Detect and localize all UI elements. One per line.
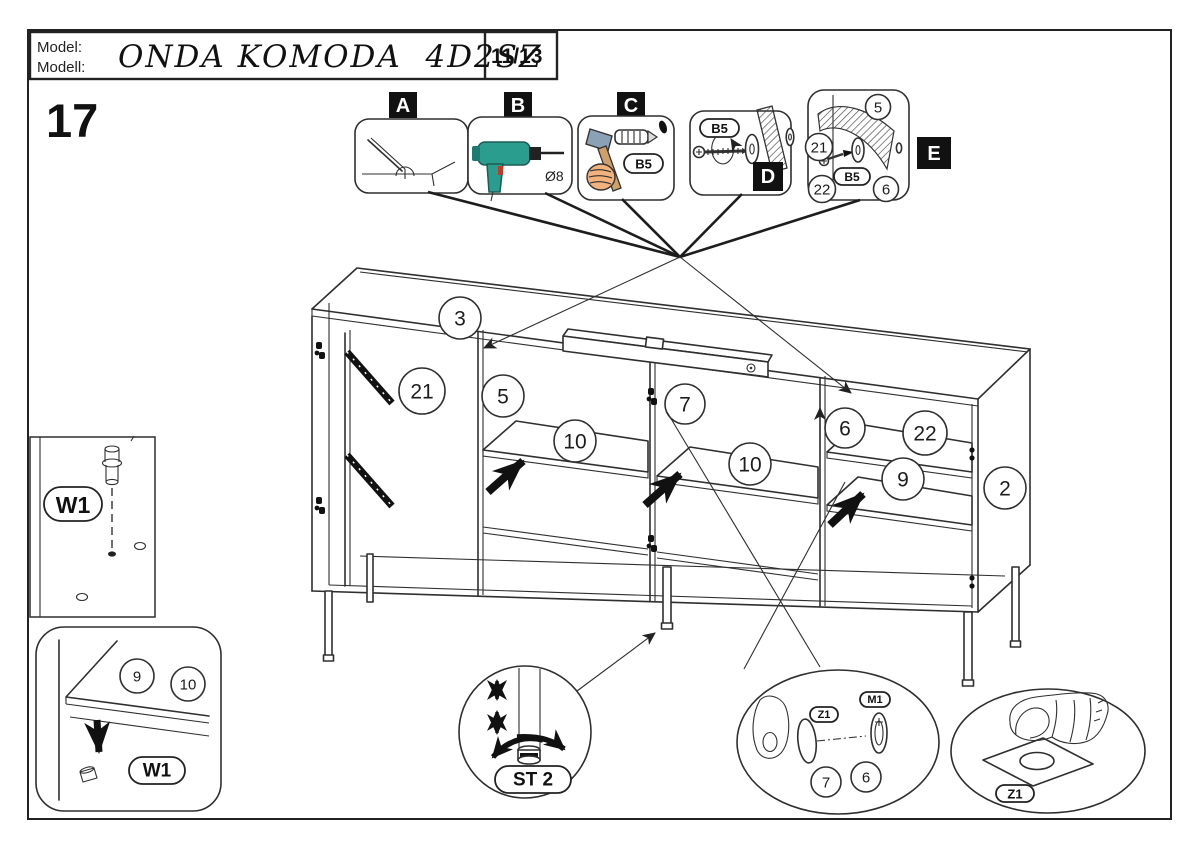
svg-text:7: 7: [822, 775, 830, 792]
svg-text:6: 6: [839, 418, 851, 441]
sticker-detail: Z1: [951, 689, 1145, 813]
assembly-diagram: Model: Modell: ONDA KOMODA 4D2SZ 11/13 1…: [0, 0, 1200, 849]
foot-pin-panel-detail: W1: [30, 436, 155, 617]
e-part-6: 6: [882, 182, 890, 199]
part-badge-21: 21: [399, 368, 445, 414]
top-rail: [563, 329, 772, 377]
drill-diameter: Ø8: [545, 168, 564, 184]
e-part-21: 21: [811, 140, 828, 157]
leveling-detail: ST 2: [459, 633, 655, 798]
modell-label: Modell:: [37, 59, 85, 76]
d-part-code: B5: [711, 121, 728, 136]
callout-d: B5 D: [690, 106, 794, 195]
svg-text:10: 10: [180, 677, 197, 694]
e-part-22: 22: [814, 182, 831, 199]
hinge-icon: [315, 497, 325, 514]
w1-code-2: W1: [143, 761, 172, 782]
part-badge-2: 2: [984, 467, 1026, 509]
instruction-sheet: Model: Modell: ONDA KOMODA 4D2SZ 11/13 1…: [0, 0, 1200, 849]
e-part-code: B5: [844, 170, 860, 184]
part-badge-5: 5: [482, 375, 524, 417]
svg-text:10: 10: [738, 454, 761, 477]
m1-magnet-icon: [871, 713, 887, 753]
z1-code-2: Z1: [1007, 787, 1022, 802]
bottom-panel: [312, 556, 1005, 612]
step-number: 17: [46, 94, 98, 147]
detail-badge-6: 6: [851, 762, 881, 792]
svg-text:6: 6: [862, 770, 870, 787]
detail-badge-10: 10: [171, 667, 205, 701]
callout-c: C B5: [578, 92, 674, 200]
part-badge-6: 6: [825, 408, 865, 448]
shelf-pin-detail: 9 10 W1: [36, 627, 221, 811]
callout-leader-lines: [428, 192, 860, 393]
model-label: Model:: [37, 39, 82, 56]
svg-text:2: 2: [999, 478, 1011, 501]
part-badge-10-left: 10: [554, 420, 596, 462]
detail-badge-7: 7: [811, 767, 841, 797]
svg-text:5: 5: [497, 386, 509, 409]
st2-code: ST 2: [513, 770, 553, 791]
z1-code: Z1: [818, 709, 831, 721]
svg-text:21: 21: [410, 381, 433, 404]
legs: [324, 554, 1021, 686]
model-name: ONDA KOMODA 4D2SZ: [118, 39, 543, 75]
callout-e: 5 21 22 6 B5 E: [806, 90, 952, 203]
callout-b-label: B: [511, 95, 525, 117]
e-part-5: 5: [874, 100, 882, 117]
part-badge-3: 3: [439, 297, 481, 339]
svg-text:10: 10: [563, 431, 586, 454]
c-part-code: B5: [635, 157, 652, 172]
hinge-icon: [315, 342, 325, 359]
part-badge-10-right: 10: [729, 443, 771, 485]
svg-text:7: 7: [679, 394, 691, 417]
detail-badge-9: 9: [120, 659, 154, 693]
page-number: 11/13: [491, 45, 542, 68]
callout-a: A: [355, 92, 468, 193]
callout-d-label: D: [761, 166, 775, 188]
drawer-slides: [347, 352, 392, 506]
title-block: Model: Modell: ONDA KOMODA 4D2SZ 11/13: [30, 32, 557, 79]
svg-text:3: 3: [454, 308, 466, 331]
m1-code: M1: [867, 694, 882, 706]
part-badge-22: 22: [903, 411, 947, 455]
svg-text:9: 9: [897, 469, 909, 492]
callout-a-label: A: [396, 95, 410, 117]
callout-e-label: E: [927, 143, 940, 165]
cabinet-drawing: 3 21 5 7 6 22 2 10 10 9: [312, 268, 1030, 686]
w1-code: W1: [56, 492, 91, 518]
svg-text:22: 22: [913, 423, 936, 446]
svg-text:9: 9: [133, 669, 141, 686]
callout-b: B Ø8: [468, 92, 572, 201]
callout-c-label: C: [624, 95, 638, 117]
part-badge-9: 9: [882, 458, 924, 500]
